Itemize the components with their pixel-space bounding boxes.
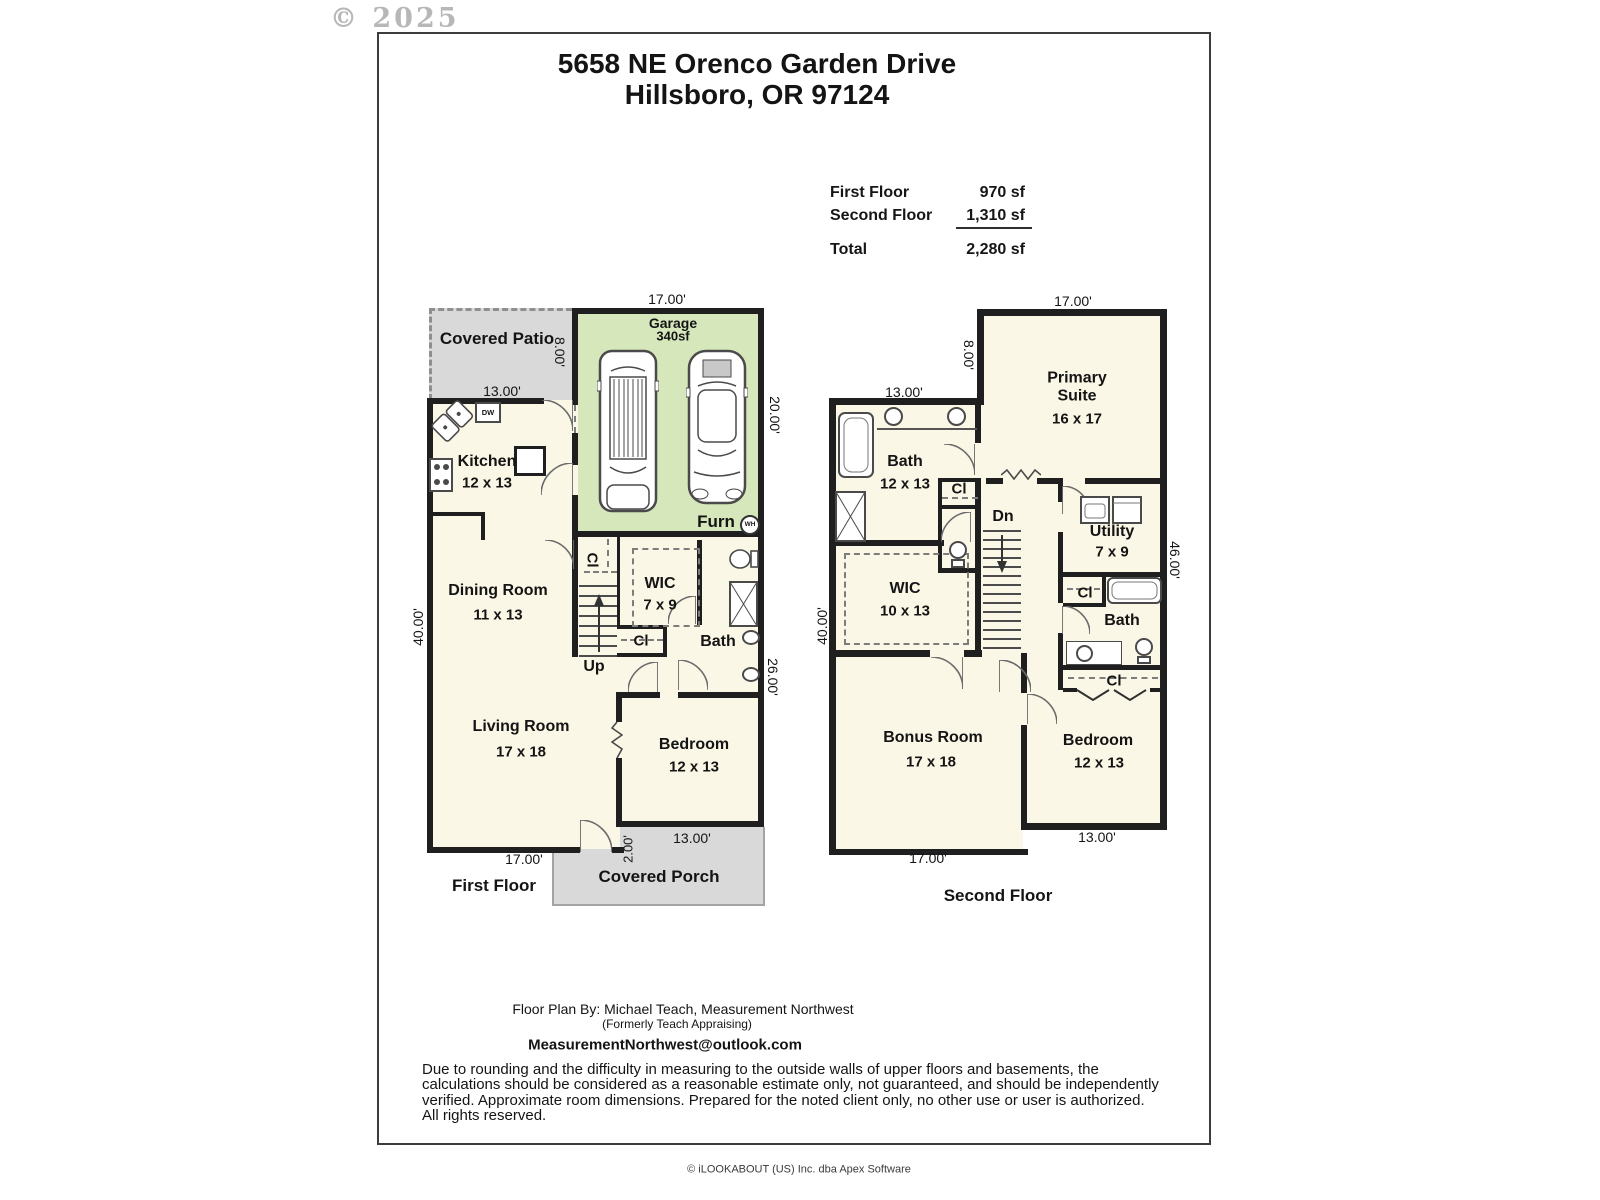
bath-label: Bath — [887, 453, 923, 471]
door-arc — [999, 660, 1031, 692]
door-arc — [541, 463, 573, 495]
summary-second-floor-value: 1,310 sf — [915, 207, 1025, 225]
living-label: Living Room — [473, 718, 570, 736]
utility-dims: 7 x 9 — [1095, 543, 1128, 560]
bedroom-label: Bedroom — [659, 736, 729, 754]
wall — [829, 650, 930, 657]
dim-label: 17.00' — [909, 850, 947, 866]
down-arrow-icon — [996, 533, 1008, 575]
bifold-door-icon — [1076, 689, 1110, 702]
wall — [1160, 309, 1167, 830]
formerly-text: (Formerly Teach Appraising) — [602, 1018, 752, 1032]
wic-dims: 10 x 13 — [880, 602, 930, 619]
wall — [427, 847, 580, 853]
disclaimer-text: Due to rounding and the difficulty in me… — [422, 1062, 1162, 1124]
toilet-icon — [949, 541, 967, 559]
car-vehicle-icon — [686, 348, 748, 506]
door-arc — [931, 657, 963, 689]
dim-label: 46.00' — [1167, 541, 1183, 579]
sink-icon — [742, 630, 760, 645]
wall — [975, 405, 981, 443]
dim-label: 8.00' — [552, 337, 568, 367]
furnace-label: Furn — [697, 512, 735, 532]
wall — [938, 505, 980, 509]
door-arc — [1062, 606, 1090, 634]
wall — [616, 698, 622, 722]
primary-suite-dims: 16 x 17 — [1052, 410, 1102, 427]
summary-underline — [956, 227, 1032, 229]
email-text: MeasurementNorthwest@outlook.com — [528, 1036, 802, 1053]
wall — [1021, 725, 1027, 829]
door-arc — [580, 820, 612, 852]
dining-dims: 11 x 13 — [473, 606, 522, 623]
sink-icon — [742, 667, 760, 682]
kitchen-label: Kitchen — [458, 453, 517, 471]
shower-icon — [729, 581, 758, 627]
wall — [829, 398, 836, 855]
closet-dashed-line — [584, 571, 617, 573]
bath-dims: 12 x 13 — [880, 475, 930, 492]
stairs-up-label: Up — [583, 658, 604, 676]
summary-first-floor-value: 970 sf — [915, 184, 1025, 202]
sink-icon — [1076, 645, 1093, 662]
bedroom-dims: 12 x 13 — [669, 758, 719, 775]
dim-label: 13.00' — [1078, 829, 1116, 845]
dim-label: 2.00' — [622, 835, 637, 863]
wall — [678, 692, 764, 698]
wall — [663, 629, 667, 655]
closet-label: Cl — [952, 480, 967, 497]
dim-label: 13.00' — [483, 383, 521, 399]
dim-label: 17.00' — [648, 291, 686, 307]
garage-area-label: 340sf — [656, 330, 689, 345]
wic-label: WIC — [889, 580, 920, 598]
closet-label: Cl — [1107, 672, 1122, 689]
stairs-down-label: Dn — [992, 508, 1013, 526]
wall — [1085, 478, 1167, 484]
toilet-icon — [729, 547, 759, 571]
floor2-area-bonus — [836, 823, 1023, 849]
bifold-door-icon — [1113, 689, 1147, 702]
kitchen-dims: 12 x 13 — [462, 474, 512, 491]
wall — [616, 821, 764, 827]
dim-label: 40.00' — [814, 607, 830, 645]
vanity-counter — [877, 428, 977, 430]
bath-label: Bath — [700, 633, 736, 651]
covered-patio-label: Covered Patio — [440, 329, 554, 349]
door-arc — [944, 444, 975, 475]
wall — [1063, 665, 1167, 670]
door-arc — [1027, 694, 1057, 724]
dim-label: 17.00' — [1054, 293, 1092, 309]
summary-first-floor-label: First Floor — [830, 184, 909, 202]
dishwasher-icon: DW — [475, 402, 501, 423]
range-icon — [429, 458, 453, 492]
bonus-room-label: Bonus Room — [883, 729, 983, 747]
wall — [977, 309, 1167, 316]
up-arrow-icon — [593, 592, 605, 654]
wall — [964, 650, 982, 657]
utility-label: Utility — [1090, 523, 1134, 541]
dim-label: 40.00' — [410, 608, 426, 646]
address-line-1: 5658 NE Orenco Garden Drive — [558, 48, 956, 80]
sink-icon — [947, 407, 966, 426]
living-dims: 17 x 18 — [496, 743, 546, 760]
suv-vehicle-icon — [597, 345, 659, 517]
toilet-tank — [951, 559, 965, 568]
wall — [617, 653, 667, 657]
wall — [1058, 633, 1063, 690]
bedroom-dims: 12 x 13 — [1074, 754, 1124, 771]
opening-zigzag — [1001, 468, 1041, 480]
dim-label: 17.00' — [505, 851, 543, 867]
address-line-2: Hillsboro, OR 97124 — [625, 79, 890, 111]
shower-icon — [835, 491, 866, 542]
wall — [758, 531, 764, 827]
dim-label: 8.00' — [961, 340, 977, 370]
wall — [1063, 688, 1077, 692]
door-arc — [628, 662, 658, 692]
dim-label: 13.00' — [885, 384, 923, 400]
closet-dashed-line — [607, 539, 609, 567]
covered-porch-label: Covered Porch — [599, 867, 720, 887]
bathtub-icon — [838, 412, 874, 478]
water-heater-icon: WH — [740, 515, 760, 535]
wall — [977, 309, 984, 405]
bath-label: Bath — [1104, 612, 1140, 630]
dim-label: 26.00' — [765, 658, 781, 696]
summary-total-label: Total — [830, 241, 867, 259]
closet-label: Cl — [1078, 584, 1093, 601]
toilet-tank — [1137, 656, 1151, 664]
door-arc — [678, 660, 708, 690]
toilet-icon — [1135, 638, 1153, 656]
closet-label: Cl — [634, 632, 649, 649]
wall — [1150, 688, 1167, 692]
vanity-counter — [1066, 641, 1122, 665]
dim-label: 13.00' — [673, 830, 711, 846]
door-arc — [545, 540, 574, 569]
wall — [616, 758, 622, 821]
door-arc — [542, 400, 573, 431]
wall — [427, 512, 485, 516]
wall — [617, 537, 620, 627]
second-floor-caption: Second Floor — [944, 886, 1053, 906]
wall — [481, 512, 485, 540]
sink-icon — [884, 407, 903, 426]
first-floor-caption: First Floor — [452, 876, 536, 896]
bathtub-icon — [1107, 577, 1162, 604]
washer-dryer-icon — [1080, 496, 1142, 524]
closet-dashed-line — [574, 405, 576, 433]
opening-zigzag — [611, 722, 623, 758]
door-arc — [941, 512, 971, 542]
wall — [938, 478, 942, 508]
wic-dims: 7 x 9 — [643, 596, 676, 613]
dim-label: 20.00' — [767, 396, 783, 434]
wall — [1102, 572, 1106, 607]
wic-label: WIC — [644, 575, 675, 593]
bedroom-label: Bedroom — [1063, 732, 1133, 750]
primary-suite-label: Primary Suite — [1029, 370, 1125, 407]
floor-plan-page: © 2025 5658 NE Orenco Garden Drive Hills… — [0, 0, 1600, 1200]
dining-label: Dining Room — [448, 582, 548, 600]
summary-total-value: 2,280 sf — [915, 241, 1025, 259]
closet-label: Cl — [583, 553, 600, 568]
byline-text: Floor Plan By: Michael Teach, Measuremen… — [512, 1001, 853, 1017]
copyright-watermark: © 2025 — [330, 3, 460, 34]
bonus-room-dims: 17 x 18 — [906, 753, 956, 770]
provider-credit: © iLOOKABOUT (US) Inc. dba Apex Software — [687, 1164, 911, 1177]
wall — [616, 692, 660, 698]
wall — [1058, 532, 1063, 603]
